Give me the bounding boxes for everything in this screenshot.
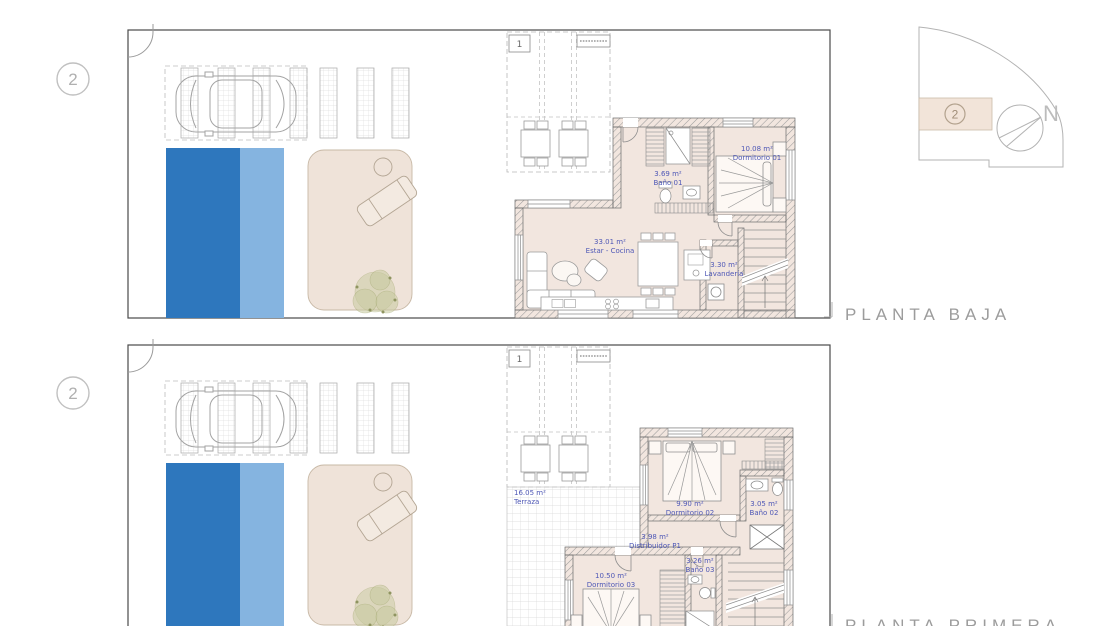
unit-marker-plan1: 2 [57,63,89,95]
site-location-diagram: 2 N [919,27,1063,167]
sink [683,186,700,199]
room-name: Lavandería [705,270,744,278]
room-area: 3.98 m² [641,533,669,541]
compass [997,105,1043,151]
wardrobe [692,128,710,166]
room-area: 10.50 m² [595,572,627,580]
toilet [772,478,783,482]
room-name: Baño 02 [750,509,779,517]
north-label: N [1043,101,1059,126]
site-unit-marker: 2 [952,108,959,122]
floorplan-drawing: 1 [0,0,1110,626]
room-name: Dormitorio 02 [666,509,714,517]
room-area: 33.01 m² [594,238,626,246]
plan1-caption: PLANTA BAJA [845,305,1011,324]
radiator [655,203,713,213]
oven [646,299,659,308]
room-area: 3.05 m² [750,500,778,508]
shower [686,611,714,626]
site-outline [919,27,1063,167]
room-area: 9.90 m² [676,500,704,508]
plan-planta-baja: 3.69 m² Baño 01 10.08 m² Dormitorio 01 3… [128,24,830,318]
room-area: 10.08 m² [741,145,773,153]
plan-planta-primera: 16.05 m² Terraza 9.90 m² Dormitorio 02 3… [128,339,830,626]
wardrobe [660,570,685,626]
room-area: 3.26 m² [686,557,714,565]
room-name: Dormitorio 03 [587,581,635,589]
room-area: 16.05 m² [514,489,546,497]
room-name: Terraza [513,498,539,506]
room-name: Estar - Cocina [586,247,635,255]
radiator [742,461,784,469]
room-area: 3.30 m² [710,261,738,269]
room-name: Dormitorio 01 [733,154,781,162]
closet [750,525,784,549]
washing-machine [708,284,724,300]
caption-tick [824,302,832,317]
toilet-tank [711,588,715,598]
unit-marker-plan2: 2 [57,377,89,409]
room-name: Distribuidor P1 [629,542,681,550]
svg-text:2: 2 [68,384,77,403]
plan2-caption: PLANTA PRIMERA [845,616,1061,626]
dining-table [638,242,678,286]
wardrobe [646,128,664,166]
shower [666,128,690,164]
room-area: 3.69 m² [654,170,682,178]
floorplan-sheet: 1 [0,0,1110,626]
room-name: Baño 03 [686,566,715,574]
svg-text:2: 2 [68,70,77,89]
room-name: Baño 01 [654,179,683,187]
